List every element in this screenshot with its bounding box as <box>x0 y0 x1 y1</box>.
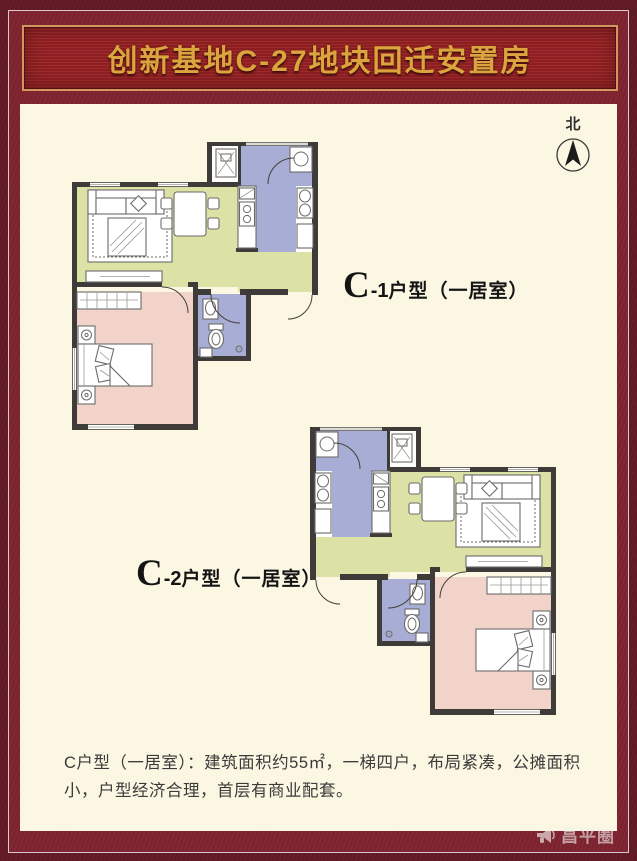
wardrobe <box>77 292 141 309</box>
entry-door-arc <box>288 295 312 319</box>
floorplan-c1 <box>70 142 318 434</box>
stove <box>240 202 255 226</box>
water-heater <box>216 149 236 177</box>
watermark-text: 昌平圈 <box>561 822 615 847</box>
floorplan-c2 <box>310 427 558 719</box>
watermark: 昌平圈 <box>535 822 615 847</box>
nightstand <box>78 386 95 404</box>
plan-c2-type: 户型（一居室） <box>182 564 322 591</box>
page-title: 创新基地C-27地块回迁安置房 <box>107 36 532 80</box>
sofa <box>88 190 164 214</box>
poster-root: 创新基地C-27地块回迁安置房 北 <box>0 0 637 861</box>
description-text: C户型（一居室）：建筑面积约55㎡，一梯四户，布局紧凑，公摊面积小，户型经济合理… <box>64 749 604 805</box>
washing-machine <box>290 147 312 172</box>
kitchen-sink <box>297 188 313 248</box>
compass: 北 <box>551 116 595 181</box>
plan-label-c2: C -2 户型（一居室） <box>136 556 322 592</box>
bed <box>78 344 152 386</box>
tv-cabinet <box>86 271 162 282</box>
plan-c1-number: -1 <box>371 280 389 303</box>
bathroom-sink <box>203 299 218 319</box>
plan-c1-letter: C <box>343 268 370 304</box>
plan-c2-number: -2 <box>164 568 182 591</box>
compass-north-label: 北 <box>551 116 595 134</box>
north-arrow-icon <box>551 134 595 176</box>
toilet <box>209 324 224 349</box>
bathroom-cabinet <box>200 348 212 357</box>
title-banner: 创新基地C-27地块回迁安置房 <box>22 25 618 91</box>
content-panel: 北 <box>20 104 617 831</box>
megaphone-icon <box>535 825 557 845</box>
plan-c1-type: 户型（一居室） <box>389 276 529 303</box>
nightstand <box>78 326 95 344</box>
plan-label-c1: C -1 户型（一居室） <box>343 268 529 304</box>
plan-c2-letter: C <box>136 556 163 592</box>
